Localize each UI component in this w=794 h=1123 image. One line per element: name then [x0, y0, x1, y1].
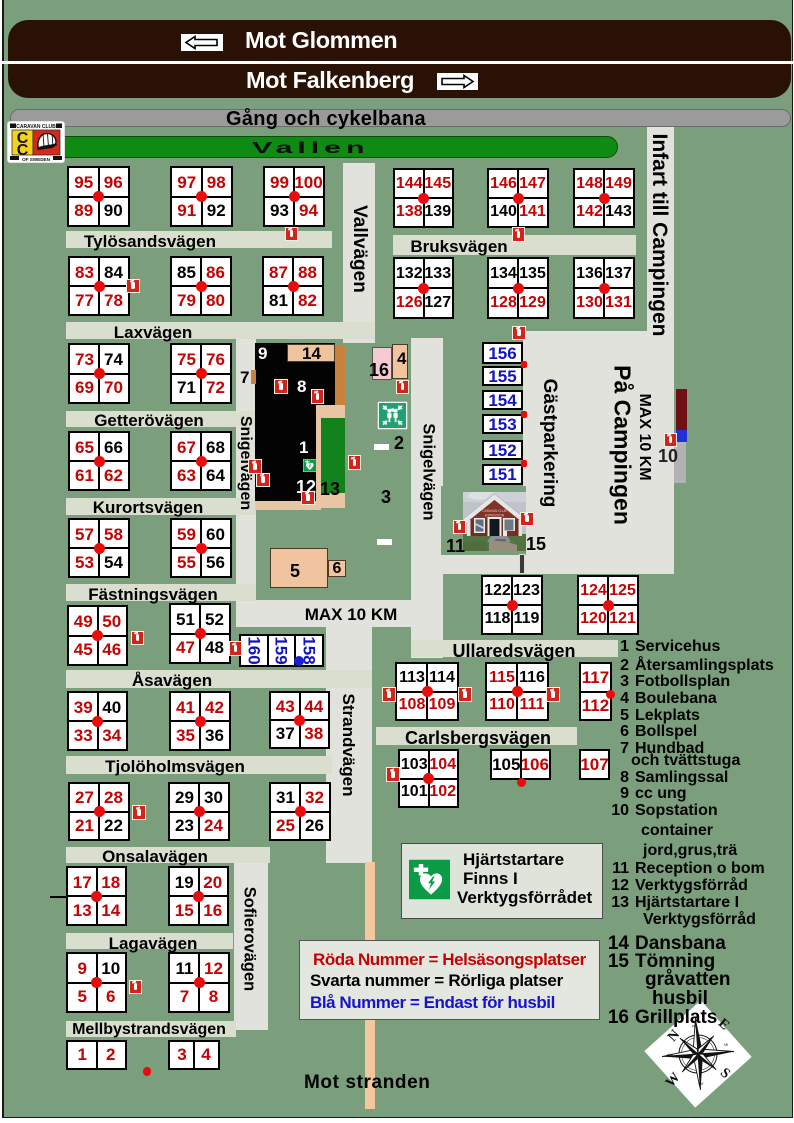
svg-text:nw: nw — [667, 1052, 674, 1058]
svg-text:C: C — [17, 142, 29, 159]
svg-text:EXPEDITION: EXPEDITION — [485, 514, 505, 518]
svg-text:CARAVAN CLUB: CARAVAN CLUB — [482, 509, 506, 513]
svg-text:sw: sw — [698, 1081, 705, 1087]
